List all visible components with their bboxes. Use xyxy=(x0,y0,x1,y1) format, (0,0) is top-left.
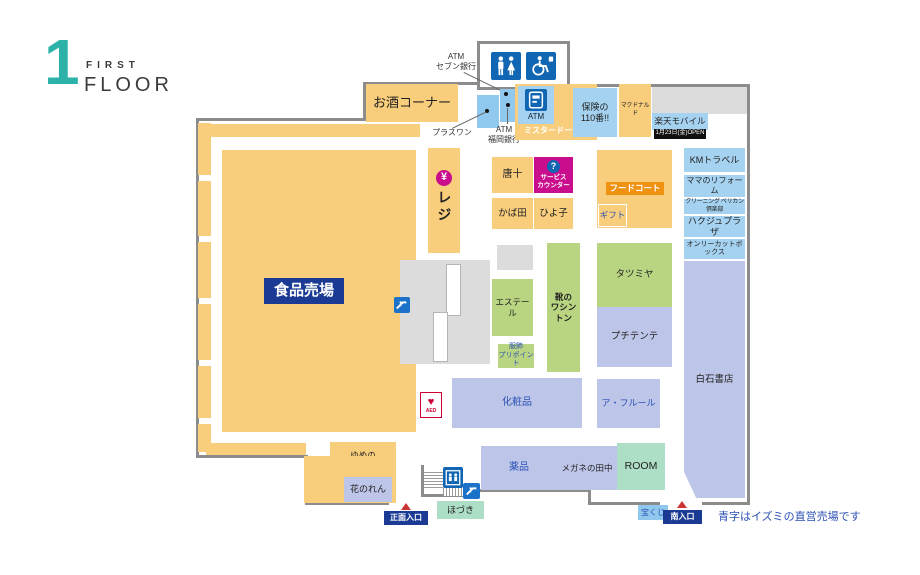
atm-caption: ATM xyxy=(528,112,544,122)
heart-icon: ♥ xyxy=(428,397,435,408)
shop-hananoren[interactable]: 花のれん xyxy=(344,477,392,502)
question-icon: ? xyxy=(547,160,560,173)
shop-fukushoku-pripoint[interactable]: 服飾 プリポイント xyxy=(498,344,534,368)
south-entrance-badge[interactable]: 南入口 xyxy=(663,510,702,524)
floor-map: 1 FIRST FLOOR 食品売場 ¥ レジ お酒コーナー xyxy=(0,0,920,575)
escalator-shaft xyxy=(446,264,461,316)
wheelchair-icon xyxy=(526,52,556,80)
food-court-badge: フードコート xyxy=(606,182,664,195)
utility-block xyxy=(497,245,533,270)
shop-shiraishi-books[interactable]: 白石書店 xyxy=(684,261,745,498)
male-female-pictogram xyxy=(493,54,519,78)
escalator-icon[interactable] xyxy=(463,483,480,499)
atm-pictogram xyxy=(526,90,546,110)
main-entrance-badge[interactable]: 正面入口 xyxy=(384,511,428,525)
stairs xyxy=(443,488,463,496)
elevator-icon[interactable] xyxy=(443,467,463,488)
shop-megane-tanaka[interactable]: メガネの田中 xyxy=(557,446,617,490)
restroom-block[interactable] xyxy=(477,41,570,90)
food-hall-text: 食品売場 xyxy=(274,282,334,300)
wheelchair-pictogram xyxy=(528,54,554,78)
shop-hoken110[interactable]: 保険の 110番!! xyxy=(573,88,617,137)
shop-pelican-cleaning[interactable]: クリーニング ペリカン倶楽部 xyxy=(684,199,745,214)
atm-seven-label: ATM セブン銀行 xyxy=(425,52,487,72)
shelf-strip xyxy=(198,123,211,175)
escalator-core xyxy=(400,260,490,364)
shelf-strip xyxy=(198,242,211,298)
shop-gift[interactable]: ギフト xyxy=(598,204,627,227)
register-label: レジ xyxy=(436,190,453,224)
shelf-strip xyxy=(198,304,211,360)
elevator-pictogram xyxy=(444,468,462,487)
shop-hiyoko[interactable]: ひよ子 xyxy=(534,198,573,229)
entrance-triangle-icon xyxy=(677,501,687,508)
shelf-strip xyxy=(198,366,211,418)
shop-food-hall[interactable]: 食品売場 xyxy=(222,150,416,432)
plus-one-label: プラスワン xyxy=(428,128,476,138)
shelf-strip xyxy=(206,443,306,455)
shop-mama-reform[interactable]: ママのリフォーム xyxy=(684,175,745,197)
shop-only-cut-box[interactable]: オンリーカットボックス xyxy=(684,239,745,259)
wall xyxy=(702,502,750,505)
escalator-icon[interactable] xyxy=(394,297,410,313)
wall xyxy=(196,118,366,121)
aed-icon[interactable]: ♥ AED xyxy=(420,392,442,418)
floor-word-first: FIRST xyxy=(86,60,140,73)
aed-label: AED xyxy=(426,408,437,414)
shop-kabata[interactable]: かば田 xyxy=(492,198,533,229)
yen-icon: ¥ xyxy=(436,170,452,186)
escalator-pictogram xyxy=(465,484,479,498)
shop-washington[interactable]: 靴の ワシントン xyxy=(547,243,580,372)
atm-icon xyxy=(525,89,547,111)
shop-hozuki[interactable]: ほづき xyxy=(437,501,484,519)
shop-petit-tente[interactable]: プチテンテ xyxy=(597,307,672,367)
shop-drugs[interactable]: 薬品 xyxy=(481,446,557,490)
shop-sake-corner[interactable]: お酒コーナー xyxy=(366,84,458,122)
shelf-strip xyxy=(206,124,420,137)
marker-dot xyxy=(506,103,510,107)
food-hall-label: 食品売場 xyxy=(264,278,344,304)
shop-rakuten-mobile[interactable]: 楽天モバイル xyxy=(652,113,708,130)
entrance-triangle-icon xyxy=(401,503,411,510)
service-counter-label: サービス カウンター xyxy=(537,174,570,190)
floor-number: 1 xyxy=(44,30,80,94)
shop-a-fleur[interactable]: ア・フルール xyxy=(597,379,660,428)
register-counter[interactable]: ¥ レジ xyxy=(428,148,460,253)
leader-line xyxy=(507,108,508,124)
escalator-shaft xyxy=(433,312,448,362)
shop-mcdonalds[interactable]: マクドナルド xyxy=(619,84,651,137)
escalator-pictogram xyxy=(395,298,409,312)
food-court-block[interactable]: フードコート ギフト xyxy=(597,150,672,228)
shelf-strip xyxy=(198,181,211,236)
shop-estelle[interactable]: エステール xyxy=(492,279,533,336)
atm-machine-block[interactable]: ATM xyxy=(518,86,554,124)
shop-km-travel[interactable]: KMトラベル xyxy=(684,148,745,172)
wall xyxy=(196,455,308,458)
legend-note: 青字はイズミの直営売場です xyxy=(718,511,861,525)
shop-tatsumiya[interactable]: タツミヤ xyxy=(597,243,672,307)
restroom-icon xyxy=(491,52,521,80)
floor-word-floor: FLOOR xyxy=(84,73,173,98)
marker-dot xyxy=(504,92,508,96)
shop-hakuju-plaza[interactable]: ハクジュプラザ xyxy=(684,216,745,237)
stairs xyxy=(424,470,443,488)
open-badge: 1月23日(金)OPEN xyxy=(654,129,706,139)
service-area xyxy=(652,87,747,114)
shop-room[interactable]: ROOM xyxy=(617,443,665,490)
shop-cosmetics[interactable]: 化粧品 xyxy=(452,378,582,428)
wall xyxy=(747,84,750,505)
service-counter[interactable]: ? サービス カウンター xyxy=(534,157,573,193)
shop-karaju[interactable]: 唐十 xyxy=(492,157,533,193)
